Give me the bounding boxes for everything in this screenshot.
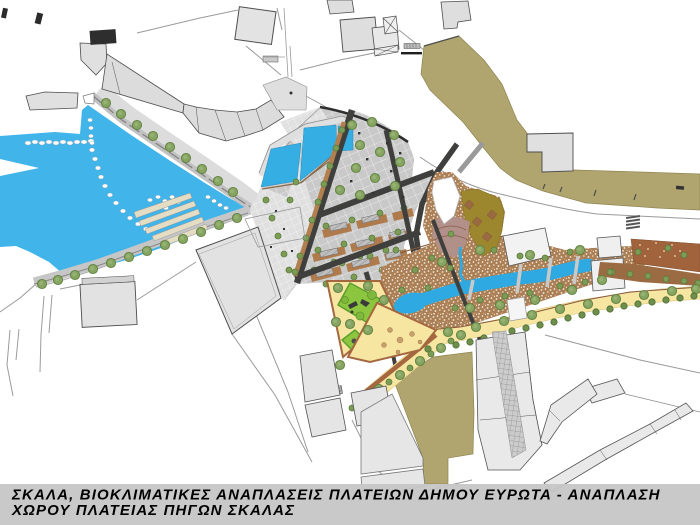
svg-text:ΣΚΑΛΑ, ΒΙΟΚΛΙΜΑΤΙΚΕΣ ΑΝΑΠΛΑΣΕΙ: ΣΚΑΛΑ, ΒΙΟΚΛΙΜΑΤΙΚΕΣ ΑΝΑΠΛΑΣΕΙΣ ΠΛΑΤΕΙΩΝ…	[11, 487, 661, 504]
svg-text:ΧΩΡΟΥ ΠΛΑΤΕΙΑΣ ΠΗΓΩΝ ΣΚΑΛΑΣ: ΧΩΡΟΥ ΠΛΑΤΕΙΑΣ ΠΗΓΩΝ ΣΚΑΛΑΣ	[11, 502, 295, 519]
